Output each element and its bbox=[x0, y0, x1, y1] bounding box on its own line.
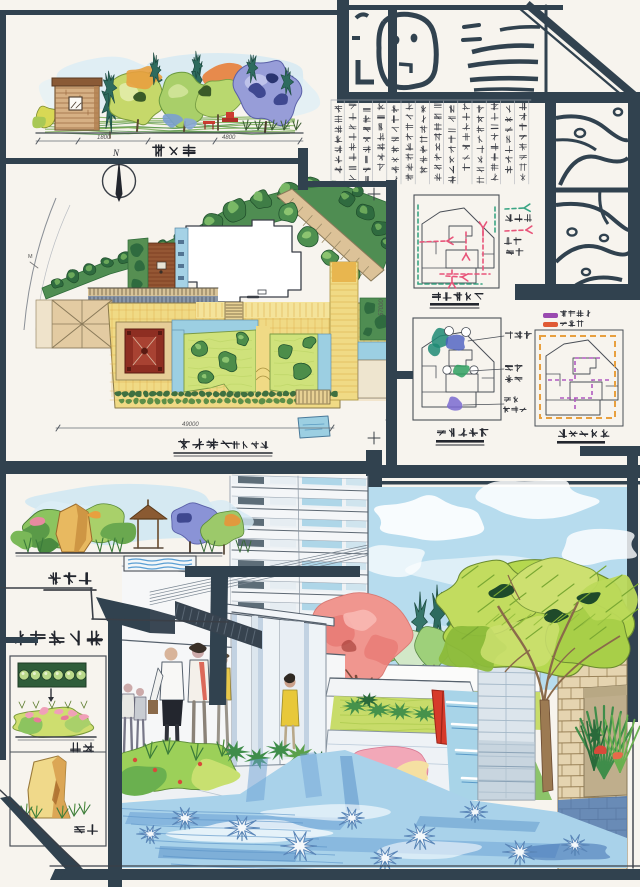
svg-text:4800: 4800 bbox=[222, 135, 236, 141]
svg-text:57000: 57000 bbox=[379, 299, 385, 316]
svg-text:1800: 1800 bbox=[97, 135, 111, 141]
svg-text:M: M bbox=[28, 254, 33, 260]
svg-text:49000: 49000 bbox=[182, 422, 199, 428]
svg-text:N: N bbox=[112, 148, 120, 158]
